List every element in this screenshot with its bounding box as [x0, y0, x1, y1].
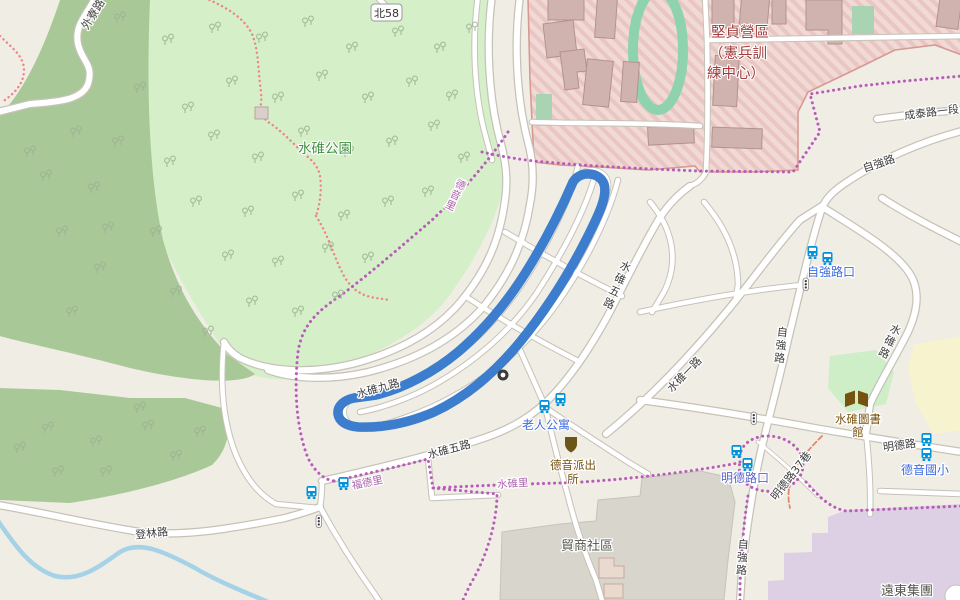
military-label-line2: （憲兵訓 [709, 44, 767, 62]
mini-roundabout-icon [498, 370, 509, 381]
estate-label-maoshang: 貿商社區 [561, 538, 613, 554]
village-label-shuidui: 水碓里 [497, 476, 529, 491]
route-ref-label: 北58 [374, 7, 399, 20]
park-hut-building [255, 107, 268, 119]
map-canvas[interactable]: 北58 外寮路 水碓公園 堅貞營區 （憲兵訓 練中心） 成泰路一段 自強路 自強… [0, 0, 960, 600]
bus-stop-label-ziqiang-intersection: 自強路口 [807, 264, 855, 279]
military-label-line1: 堅貞營區 [711, 24, 769, 41]
traffic-signals-icon [803, 278, 809, 291]
library-label-line2: 館 [852, 425, 864, 439]
police-label-line1: 德音派出 [550, 458, 596, 472]
park-label: 水碓公園 [298, 141, 352, 157]
police-label-line2: 所 [567, 472, 579, 486]
bus-stop-label-mingde-intersection: 明德路口 [721, 470, 769, 485]
road-ref-shield: 北58 [371, 4, 402, 21]
traffic-signals-icon [751, 412, 757, 425]
school-label-deyin: 德音國小 [901, 462, 949, 477]
library-label-line1: 水碓圖書 [835, 412, 881, 426]
bus-stop-label-elder-apartment: 老人公寓 [522, 417, 570, 432]
military-label-line3: 練中心） [707, 65, 765, 82]
company-label-fareast: 遠東集團 [881, 583, 933, 599]
traffic-signals-icon [316, 515, 322, 528]
